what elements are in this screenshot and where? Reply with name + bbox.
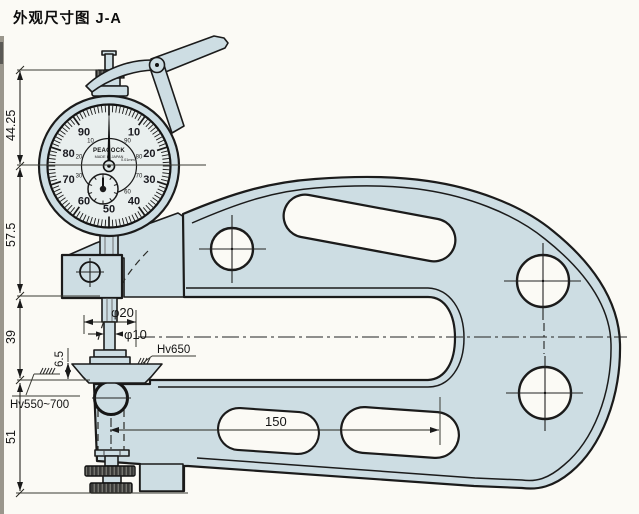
dial-inner-number: 10 [87,139,94,145]
roughness-mark [40,368,55,374]
dim-phi10-label: φ10 [124,327,147,342]
dial-inner-number: 80 [136,154,143,160]
hardness-note-upper: Hv650 [138,344,196,364]
stem [100,234,118,256]
fine-adjuster [85,450,135,493]
adjuster-knurled-wheel-lower [90,483,132,493]
dimension-drawing: Hv550~700 Hv650 102030405060708090 90807… [0,0,639,514]
dial-outer-number: 80 [62,148,74,160]
dim-44-25-label: 44.25 [4,110,18,141]
dial-indicator: 102030405060708090 908070605040302010 PE… [39,96,179,236]
dial-inner-number: 70 [136,174,143,180]
dial-outer-number: 50 [103,204,115,216]
drawing-sheet: Hv550~700 Hv650 102030405060708090 90807… [0,0,639,514]
dial-outer-number: 70 [62,174,74,186]
dial-inner-number: 30 [76,174,83,180]
dim-150-label: 150 [265,414,287,429]
adjuster-knurled-wheel-upper [85,466,135,476]
stem-clamp-block [62,255,122,298]
lower-arm-slot-right [364,430,436,435]
dial-outer-number: 30 [143,174,155,186]
dim-39-label: 39 [4,330,18,344]
dial-inner-number: 20 [76,154,83,160]
page-title: 外观尺寸图 J-A [13,9,122,27]
dial-inner-number: 90 [124,139,131,145]
contact-flange [94,350,126,357]
dial-inner-number: 60 [124,190,131,196]
hardness-lower-label: Hv550~700 [10,399,69,411]
revolution-subdial [88,174,118,204]
dial-outer-number: 20 [143,148,155,160]
upper-arm-slot [305,216,434,240]
dim-phi20-label: φ20 [111,305,134,320]
hardness-upper-label: Hv650 [157,344,190,356]
dim-57-5-label: 57.5 [4,223,18,247]
dial-graduation-label: 0.01mm [121,158,135,162]
dial-outer-number: 10 [128,127,140,139]
dim-51-label: 51 [4,430,18,444]
dial-outer-number: 40 [128,195,140,207]
dim-6-5-label: 6.5 [54,351,66,367]
dial-outer-number: 60 [78,195,90,207]
dial-outer-number: 90 [78,127,90,139]
base-foot [140,464,183,491]
